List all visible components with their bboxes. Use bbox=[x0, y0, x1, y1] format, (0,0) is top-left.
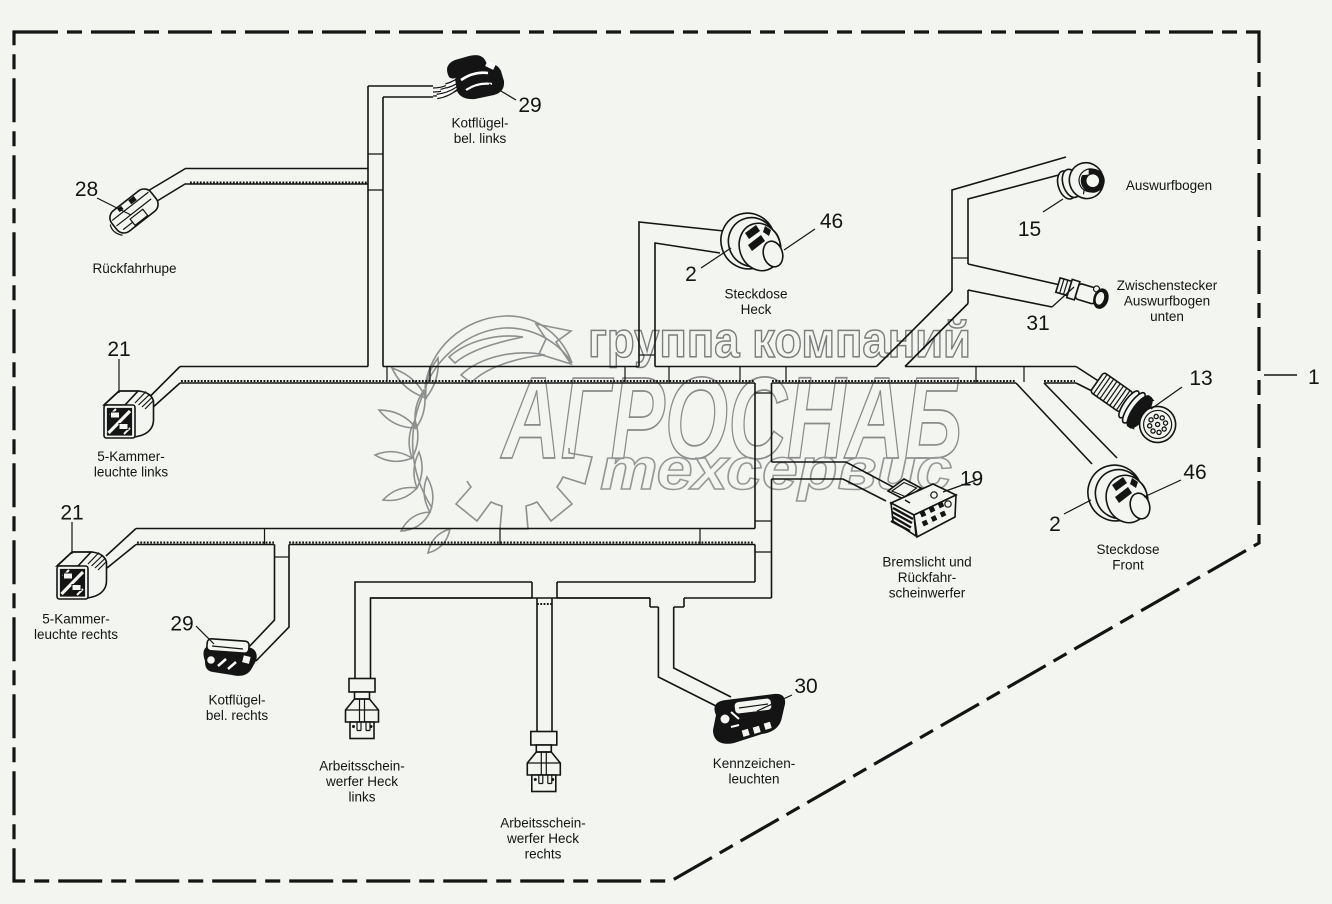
svg-text:Rückfahr-: Rückfahr- bbox=[898, 570, 957, 585]
svg-text:46: 46 bbox=[820, 210, 843, 233]
svg-text:28: 28 bbox=[75, 178, 98, 201]
svg-text:Auswurfbogen: Auswurfbogen bbox=[1126, 178, 1212, 193]
svg-text:2: 2 bbox=[685, 263, 697, 286]
svg-text:Arbeitsschein-: Arbeitsschein- bbox=[319, 759, 405, 774]
svg-text:unten: unten bbox=[1150, 309, 1184, 324]
svg-text:bel. links: bel. links bbox=[454, 131, 507, 146]
svg-text:bel. rechts: bel. rechts bbox=[206, 708, 269, 723]
svg-text:werfer Heck: werfer Heck bbox=[506, 831, 579, 846]
svg-text:31: 31 bbox=[1026, 312, 1049, 335]
svg-text:Auswurfbogen: Auswurfbogen bbox=[1124, 294, 1210, 309]
svg-text:13: 13 bbox=[1189, 367, 1212, 390]
svg-text:30: 30 bbox=[794, 675, 817, 698]
svg-text:Bremslicht und: Bremslicht und bbox=[882, 555, 971, 570]
svg-text:Kennzeichen-: Kennzeichen- bbox=[713, 756, 796, 771]
svg-text:Steckdose: Steckdose bbox=[1096, 542, 1159, 557]
svg-text:leuchten: leuchten bbox=[728, 772, 779, 787]
svg-text:Kotflügel-: Kotflügel- bbox=[451, 116, 508, 131]
svg-text:21: 21 bbox=[107, 338, 130, 361]
svg-text:links: links bbox=[348, 790, 375, 805]
svg-text:Rückfahrhupe: Rückfahrhupe bbox=[92, 261, 176, 276]
svg-text:46: 46 bbox=[1183, 461, 1206, 484]
svg-text:Heck: Heck bbox=[741, 302, 772, 317]
svg-text:29: 29 bbox=[518, 94, 541, 117]
svg-text:1: 1 bbox=[1308, 366, 1320, 389]
svg-text:Kotflügel-: Kotflügel- bbox=[208, 693, 265, 708]
svg-text:werfer Heck: werfer Heck bbox=[325, 774, 398, 789]
svg-text:rechts: rechts bbox=[525, 847, 562, 862]
svg-text:21: 21 bbox=[60, 502, 83, 525]
svg-text:scheinwerfer: scheinwerfer bbox=[889, 586, 966, 601]
svg-text:Front: Front bbox=[1112, 558, 1144, 573]
svg-text:Steckdose: Steckdose bbox=[724, 287, 787, 302]
svg-text:leuchte links: leuchte links bbox=[94, 465, 169, 480]
svg-text:Zwischenstecker: Zwischenstecker bbox=[1117, 278, 1218, 293]
svg-text:Arbeitsschein-: Arbeitsschein- bbox=[500, 816, 586, 831]
svg-text:29: 29 bbox=[170, 613, 193, 636]
svg-text:leuchte rechts: leuchte rechts bbox=[34, 627, 118, 642]
svg-text:5-Kammer-: 5-Kammer- bbox=[42, 612, 110, 627]
svg-text:2: 2 bbox=[1049, 513, 1061, 536]
svg-text:5-Kammer-: 5-Kammer- bbox=[97, 449, 165, 464]
svg-text:15: 15 bbox=[1018, 218, 1041, 241]
